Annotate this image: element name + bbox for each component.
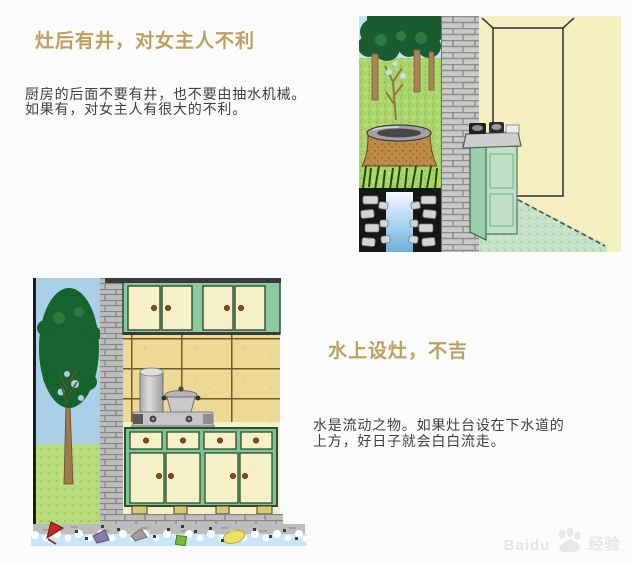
well [362, 125, 437, 166]
illustration-stove-over-drain [31, 278, 307, 546]
watermark-text-right: 经验 [588, 533, 620, 554]
outdoor-scene [359, 16, 448, 192]
article-image: 灶后有井，对女主人不利 厨房的后面不要有井，也不要由抽水机械。 如果有，对女主人… [0, 0, 631, 563]
section1-body: 厨房的后面不要有井，也不要由抽水机械。 如果有，对女主人有很大的不利。 [25, 87, 306, 117]
watermark-text-left: Baidu [504, 537, 551, 554]
well-shaft-underground [359, 188, 441, 252]
section2-title: 水上设灶，不吉 [328, 336, 468, 363]
illustration-well-behind-kitchen [359, 16, 621, 252]
outdoor-scene [33, 278, 101, 524]
border-line [33, 278, 36, 524]
kitchen [105, 278, 283, 525]
body-line: 水是流动之物。如果灶台设在下水道的 [313, 417, 565, 433]
body-line: 上方，好日子就会白白流走。 [313, 433, 565, 449]
body-line: 如果有，对女主人有很大的不利。 [25, 102, 306, 117]
stove-counter [463, 122, 521, 240]
section2-body: 水是流动之物。如果灶台设在下水道的 上方，好日子就会白白流走。 [313, 417, 565, 449]
section1-title: 灶后有井，对女主人不利 [35, 26, 255, 53]
kitchen-interior [463, 16, 621, 252]
brick-base [119, 514, 283, 525]
watermark-baidu-jingyan: Baidu 经验 [492, 512, 631, 554]
brick-wall [100, 278, 123, 524]
body-line: 厨房的后面不要有井，也不要由抽水机械。 [25, 87, 306, 102]
lower-cabinets [125, 428, 277, 514]
baidu-paw-icon [552, 528, 586, 552]
